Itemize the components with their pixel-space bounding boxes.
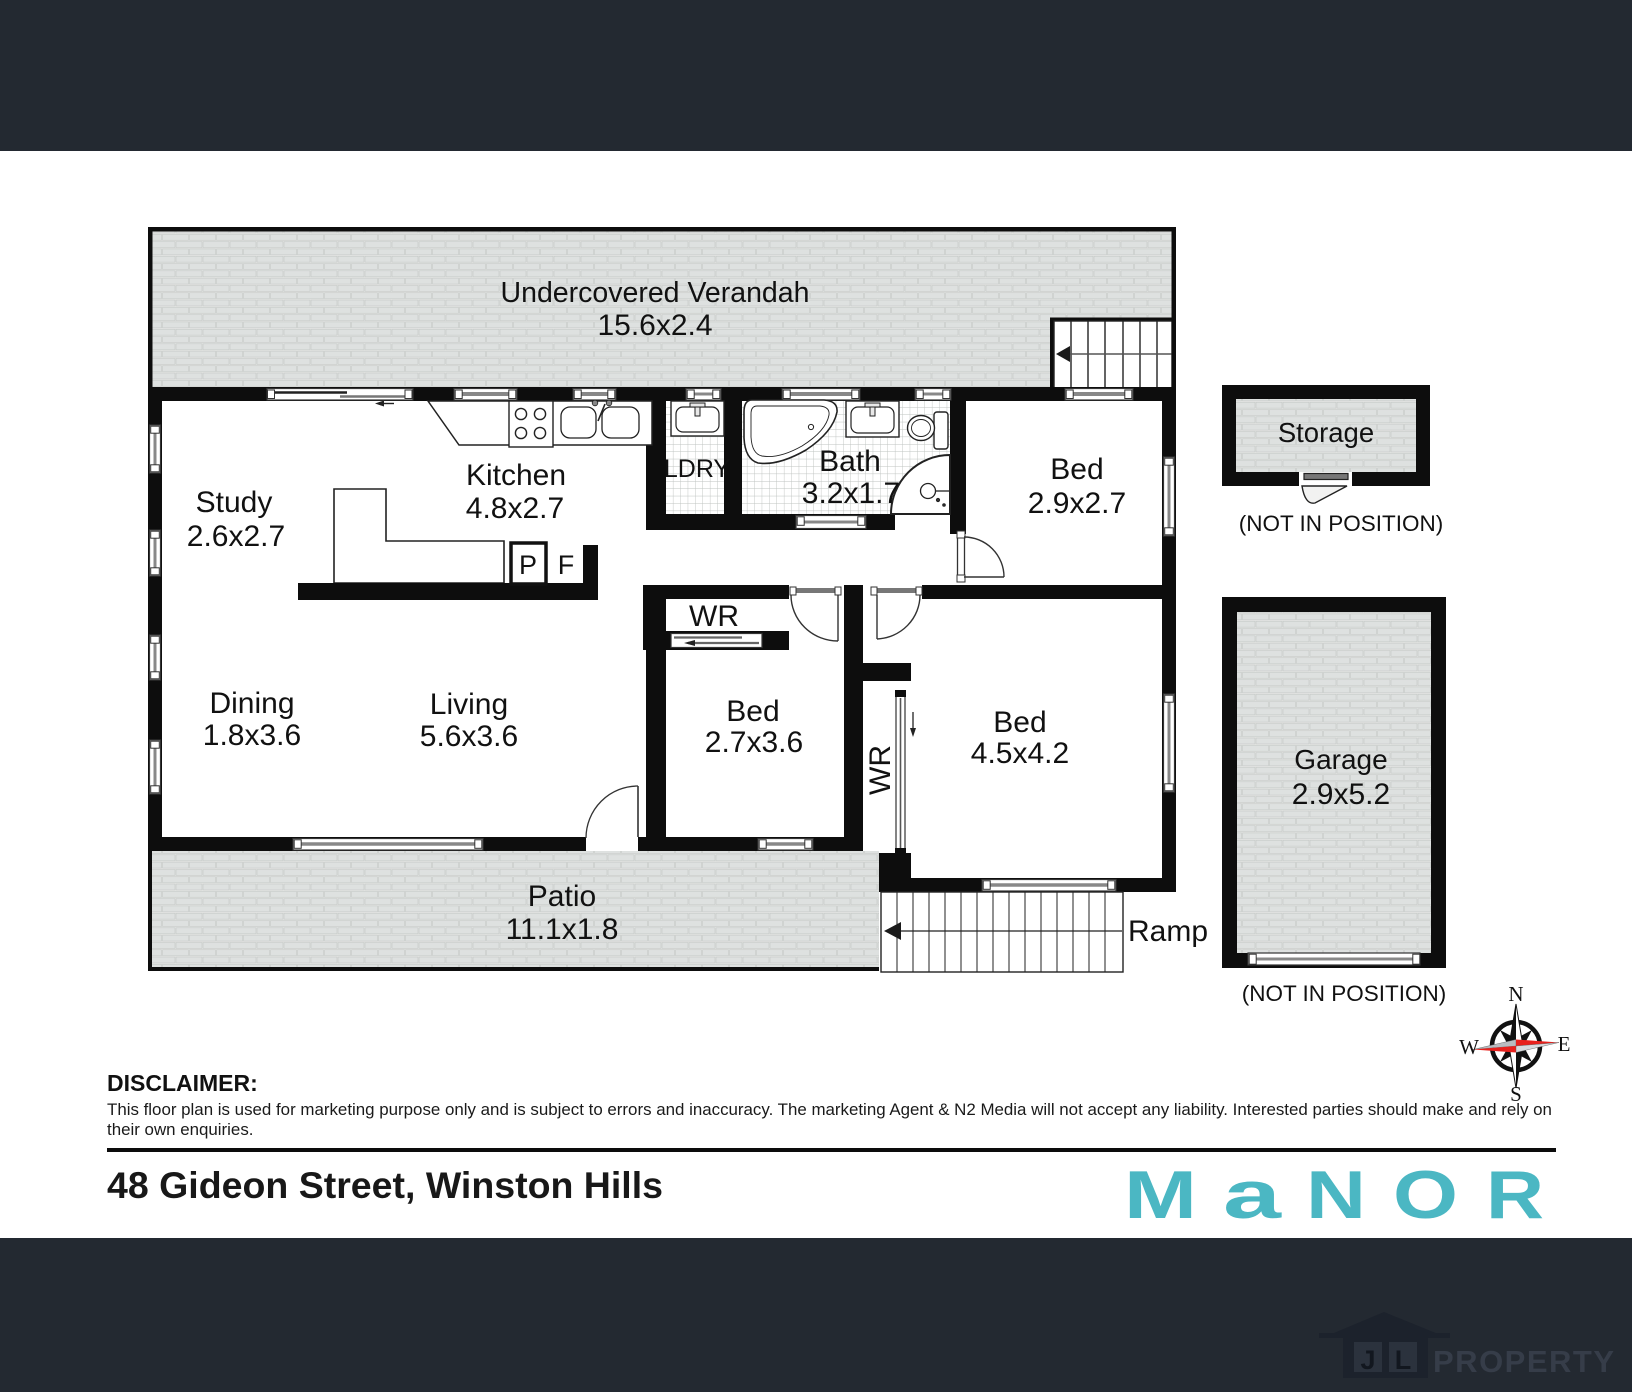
svg-text:WR: WR: [864, 745, 897, 795]
svg-text:Storage: Storage: [1278, 417, 1374, 448]
svg-text:W: W: [1459, 1035, 1479, 1059]
svg-text:Bed: Bed: [1050, 453, 1103, 486]
svg-text:Garage: Garage: [1294, 744, 1387, 775]
svg-text:LDRY: LDRY: [664, 455, 731, 483]
svg-text:E: E: [1558, 1032, 1571, 1056]
svg-text:Bed: Bed: [726, 695, 779, 728]
svg-text:11.1x1.8: 11.1x1.8: [506, 913, 619, 946]
svg-text:Ramp: Ramp: [1128, 915, 1208, 948]
svg-text:L: L: [1395, 1345, 1412, 1375]
svg-text:2.9x5.2: 2.9x5.2: [1292, 778, 1390, 811]
svg-text:1.8x3.6: 1.8x3.6: [203, 719, 301, 752]
svg-text:P: P: [519, 550, 537, 580]
svg-text:(NOT IN POSITION): (NOT IN POSITION): [1239, 511, 1444, 536]
svg-text:(NOT IN POSITION): (NOT IN POSITION): [1242, 981, 1447, 1006]
svg-text:Undercovered Verandah: Undercovered Verandah: [501, 277, 810, 309]
svg-text:4.5x4.2: 4.5x4.2: [971, 737, 1069, 770]
svg-text:Living: Living: [430, 688, 508, 721]
svg-text:Patio: Patio: [528, 880, 596, 913]
svg-text:F: F: [558, 550, 575, 580]
svg-text:J: J: [1360, 1345, 1375, 1375]
svg-text:15.6x2.4: 15.6x2.4: [597, 309, 712, 342]
svg-text:Dining: Dining: [209, 687, 294, 720]
svg-text:2.6x2.7: 2.6x2.7: [187, 520, 285, 553]
svg-text:5.6x3.6: 5.6x3.6: [420, 720, 518, 753]
svg-text:4.8x2.7: 4.8x2.7: [466, 492, 564, 525]
svg-text:PROPERTY: PROPERTY: [1433, 1344, 1616, 1379]
svg-text:2.7x3.6: 2.7x3.6: [705, 726, 803, 759]
svg-text:Bath: Bath: [819, 445, 881, 478]
svg-text:WR: WR: [689, 600, 739, 633]
svg-text:3.2x1.7: 3.2x1.7: [802, 477, 900, 510]
svg-text:Kitchen: Kitchen: [466, 459, 566, 492]
svg-text:2.9x2.7: 2.9x2.7: [1028, 487, 1126, 520]
svg-text:Bed: Bed: [993, 706, 1046, 739]
svg-text:Study: Study: [196, 486, 273, 519]
svg-text:N: N: [1508, 982, 1523, 1006]
